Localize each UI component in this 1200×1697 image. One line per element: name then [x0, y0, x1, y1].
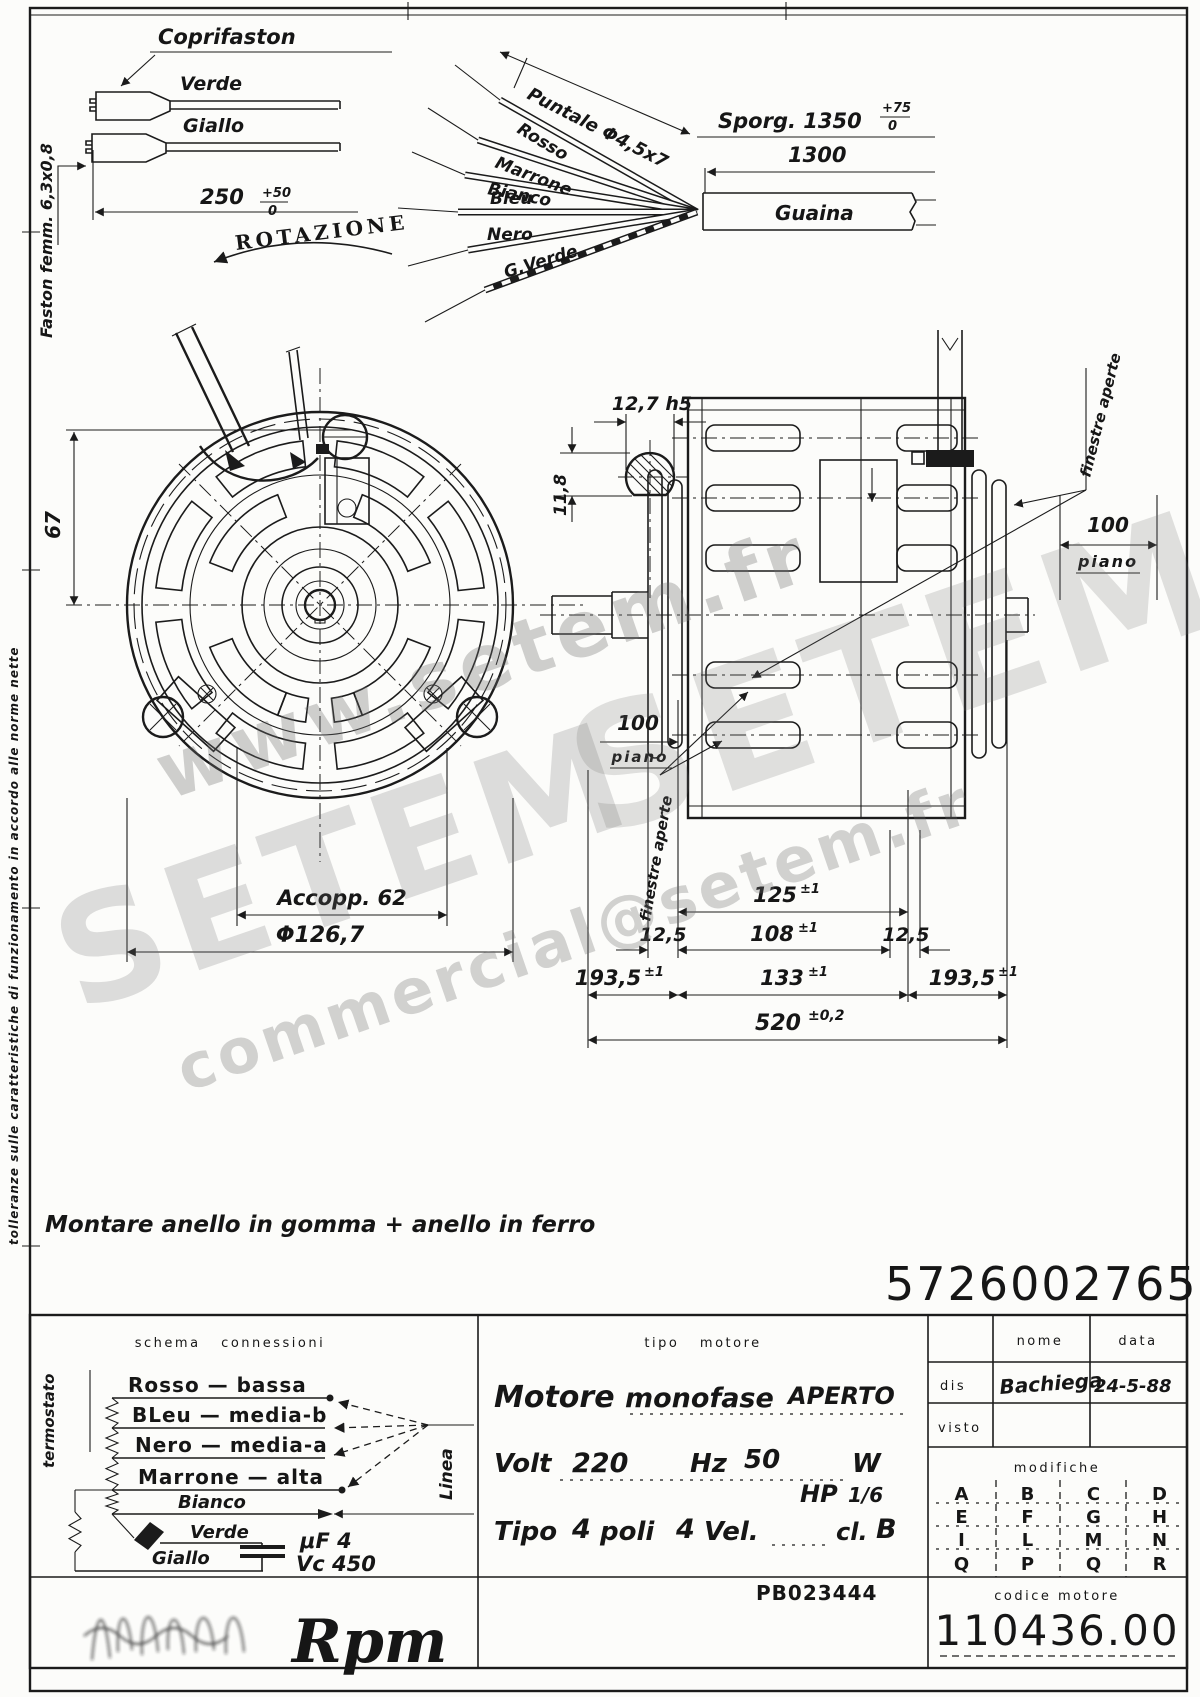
- dim-diameter: Φ126,7: [276, 923, 365, 948]
- capacitor-uf: μF 4: [299, 1529, 352, 1553]
- connection-schematic: schema connessioni termostato: [40, 1336, 474, 1576]
- dim-shaft-width: 12,7 h5: [612, 393, 692, 415]
- poli-label: poli: [599, 1517, 655, 1547]
- mod-h: H: [1152, 1507, 1168, 1528]
- cl-label: cl.: [836, 1518, 868, 1546]
- dis-date: 24-5-88: [1094, 1376, 1172, 1397]
- schema-giallo: Giallo: [152, 1548, 210, 1569]
- hz-value: 50: [744, 1445, 780, 1475]
- nero-label: Nero: [487, 225, 533, 245]
- approvals-table: nome data dis Bachiega 24-5-88 visto: [928, 1315, 1187, 1447]
- giallo-wire-label: Giallo: [183, 115, 244, 137]
- setem-watermarks: www.setem.fr SETEM SETEM commercial@sete…: [33, 472, 1200, 1107]
- dim-125: 125: [753, 883, 797, 907]
- dim-133: 133: [760, 966, 804, 990]
- margin-note: tolleranze sulle caratteristiche di funz…: [7, 646, 21, 1245]
- rotation-annotation: ROTAZIONE: [214, 210, 410, 262]
- coprifaston-label: Coprifaston: [158, 25, 296, 49]
- termostato-label: termostato: [40, 1374, 58, 1468]
- mod-b: B: [1021, 1484, 1036, 1505]
- mod-r: R: [1153, 1554, 1168, 1575]
- sporg-tol-bot: 0: [888, 119, 897, 134]
- dim-250: 250: [200, 185, 244, 209]
- sporg-tol-top: +75: [882, 101, 911, 116]
- technical-drawing-sheet: tolleranze sulle caratteristiche di funz…: [0, 0, 1200, 1697]
- revisions-table: modifiche A E I Q B F L P C G M Q D H N …: [936, 1461, 1182, 1577]
- dim-520-tol: ±0,2: [808, 1008, 845, 1024]
- mod-e: E: [955, 1507, 968, 1528]
- nome-header: nome: [1017, 1334, 1064, 1349]
- hp-value: 1/6: [848, 1483, 883, 1507]
- schema-bianco: Bianco: [178, 1492, 246, 1513]
- capacitor-vc: Vc 450: [296, 1552, 376, 1576]
- dim-accopp: Accopp. 62: [275, 886, 407, 910]
- sporg-label: Sporg. 1350: [718, 109, 862, 133]
- vel-label: Vel.: [704, 1517, 759, 1547]
- schema-verde: Verde: [190, 1522, 249, 1543]
- schema-row-marrone: Marrone — alta: [138, 1465, 324, 1489]
- data-header: data: [1118, 1334, 1157, 1349]
- left-mounting-lug: [143, 677, 235, 752]
- cable-bundle-detail: Puntale Φ4,5x7 Rosso Marrone Bianco Bleu…: [398, 52, 936, 322]
- mod-g: G: [1086, 1507, 1102, 1528]
- dim-1300: 1300: [788, 143, 846, 167]
- mod-p: P: [1021, 1554, 1035, 1575]
- cl-value: B: [876, 1514, 897, 1545]
- dim-125-tol: ±1: [800, 882, 820, 897]
- dim-250-tol-top: +50: [262, 186, 291, 201]
- motore-label: Motore: [494, 1380, 615, 1415]
- guaina-label: Guaina: [775, 201, 854, 225]
- verde-wire-label: Verde: [180, 73, 242, 95]
- volt-label: Volt: [494, 1449, 553, 1479]
- mod-i: I: [958, 1530, 966, 1551]
- faston-size-note: Faston femm. 6,3x0,8: [37, 143, 56, 338]
- dim-100-left: 100: [617, 711, 659, 735]
- gverde-label: G.Verde: [502, 241, 580, 282]
- right-mounting-lug: [405, 677, 497, 752]
- assembly-note: Montare anello in gomma + anello in ferr…: [45, 1212, 595, 1238]
- mod-q2: Q: [1086, 1554, 1102, 1575]
- bleu-label: Bleu: [490, 189, 532, 209]
- mod-l: L: [1022, 1530, 1034, 1551]
- dim-133-tol: ±1: [808, 965, 828, 980]
- piano-left-label: piano: [611, 748, 669, 766]
- linea-label: Linea: [437, 1448, 457, 1500]
- dim-12-5-right: 12,5: [883, 924, 930, 946]
- stamp-logo: [84, 1617, 244, 1660]
- motor-drawing-svg: tolleranze sulle caratteristiche di funz…: [0, 0, 1200, 1697]
- hz-label: Hz: [690, 1449, 728, 1479]
- dim-520: 520: [755, 1011, 801, 1036]
- shaft-section-detail: 12,7 h5 11,8: [551, 393, 742, 598]
- motor-type-block: tipo motore Motore monofase APERTO Volt …: [494, 1336, 905, 1605]
- hp-label: HP: [800, 1480, 838, 1508]
- schema-row-rosso: Rosso — bassa: [128, 1373, 307, 1397]
- resistor-symbols: [69, 1398, 118, 1552]
- pb-code: PB023444: [756, 1581, 877, 1605]
- tipo-value: 4: [571, 1514, 591, 1545]
- dim-1935-left: 193,5: [575, 966, 641, 990]
- dim-12-5-left: 12,5: [640, 924, 687, 946]
- codice-value: 110436.00: [934, 1606, 1179, 1655]
- tipo-label: Tipo: [494, 1517, 557, 1547]
- tipo-header: tipo motore: [644, 1336, 761, 1351]
- modifiche-header: modifiche: [1014, 1461, 1101, 1476]
- mod-q1: Q: [954, 1554, 970, 1575]
- motor-front-view: [66, 324, 585, 862]
- monofase-value: monofase: [625, 1383, 774, 1414]
- codice-label: codice motore: [994, 1589, 1119, 1604]
- visto-label: visto: [938, 1421, 982, 1436]
- dim-100-right: 100: [1087, 513, 1129, 537]
- mod-f: F: [1021, 1507, 1034, 1528]
- dim-108-tol: ±1: [798, 921, 818, 936]
- dim-1935-left-tol: ±1: [644, 965, 664, 980]
- poli-value: 4: [675, 1514, 695, 1545]
- schema-row-bleu: BLeu — media-b: [132, 1403, 327, 1427]
- schema-header: schema connessioni: [135, 1336, 325, 1351]
- dim-250-tol-bot: 0: [268, 204, 277, 219]
- finestre-right-label: finestre aperte: [1076, 351, 1124, 479]
- schema-row-nero: Nero — media-a: [135, 1433, 328, 1457]
- mod-n: N: [1152, 1530, 1168, 1551]
- title-block: schema connessioni termostato: [30, 1315, 1187, 1677]
- faston-connector-detail: Coprifaston Verde Giallo 250 +50 0 Fasto…: [37, 25, 392, 338]
- motor-code-block: codice motore 110436.00: [928, 1577, 1187, 1656]
- stator-windows: [706, 425, 957, 748]
- dim-1935-right: 193,5: [929, 966, 995, 990]
- mod-m: M: [1085, 1530, 1104, 1551]
- piano-right-label: piano: [1077, 552, 1138, 571]
- dis-label: dis: [940, 1379, 966, 1394]
- mod-d: D: [1152, 1484, 1168, 1505]
- dim-1935-right-tol: ±1: [998, 965, 1018, 980]
- finestre-left-label: finestre aperte: [636, 794, 676, 923]
- dim-67: 67: [41, 511, 65, 539]
- mod-c: C: [1087, 1484, 1101, 1505]
- drawing-number: 5726002765: [885, 1257, 1198, 1311]
- dim-shaft-height: 11,8: [551, 474, 571, 516]
- manufacturer-logo: Rpm: [84, 1607, 447, 1677]
- rpm-logo-text: Rpm: [290, 1607, 447, 1677]
- w-label: W: [852, 1449, 882, 1479]
- motor-side-view: 12,7 h5 11,8: [540, 330, 1125, 923]
- volt-value: 220: [572, 1448, 628, 1479]
- aperto-value: APERTO: [786, 1382, 895, 1410]
- dim-108: 108: [750, 922, 794, 946]
- mod-a: A: [955, 1484, 970, 1505]
- dis-signature: Bachiega: [999, 1368, 1104, 1399]
